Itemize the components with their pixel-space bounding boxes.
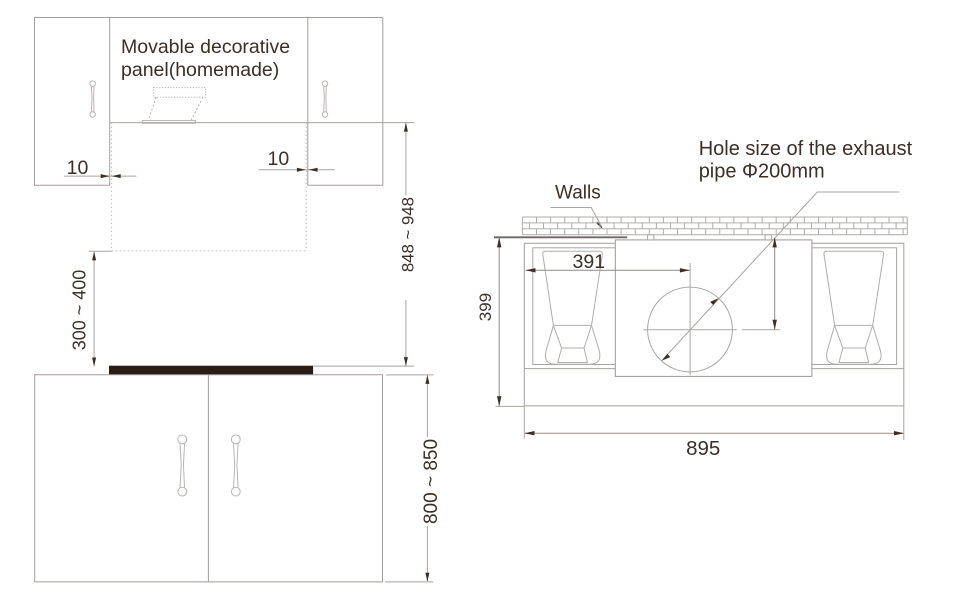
- svg-text:848 ~ 948: 848 ~ 948: [399, 197, 418, 272]
- svg-text:10: 10: [268, 148, 290, 170]
- svg-text:panel(homemade): panel(homemade): [121, 59, 279, 81]
- svg-text:Walls: Walls: [555, 183, 601, 204]
- svg-text:pipe Φ200mm: pipe Φ200mm: [699, 161, 825, 183]
- svg-text:300 ~ 400: 300 ~ 400: [70, 270, 90, 351]
- svg-text:800 ~ 850: 800 ~ 850: [421, 439, 442, 524]
- svg-text:Hole size of the exhaust: Hole size of the exhaust: [699, 138, 913, 160]
- svg-text:895: 895: [686, 437, 720, 460]
- svg-text:Movable decorative: Movable decorative: [121, 36, 290, 58]
- svg-text:10: 10: [67, 157, 89, 179]
- svg-text:391: 391: [573, 251, 606, 273]
- svg-text:399: 399: [476, 293, 495, 321]
